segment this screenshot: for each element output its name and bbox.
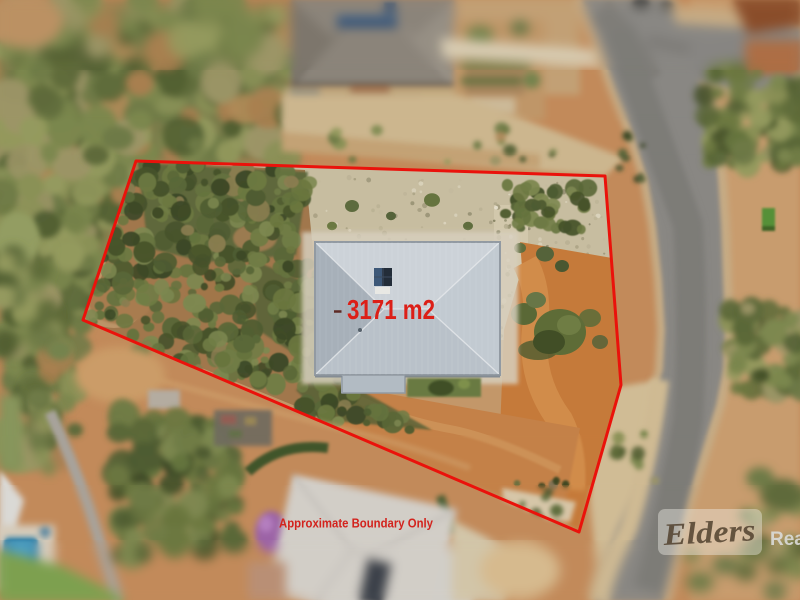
svg-text:Rea: Rea [770, 529, 800, 550]
svg-text:3171 m2: 3171 m2 [347, 294, 435, 325]
svg-text:Approximate Boundary Only: Approximate Boundary Only [279, 516, 434, 531]
svg-text:Elders: Elders [661, 512, 756, 552]
